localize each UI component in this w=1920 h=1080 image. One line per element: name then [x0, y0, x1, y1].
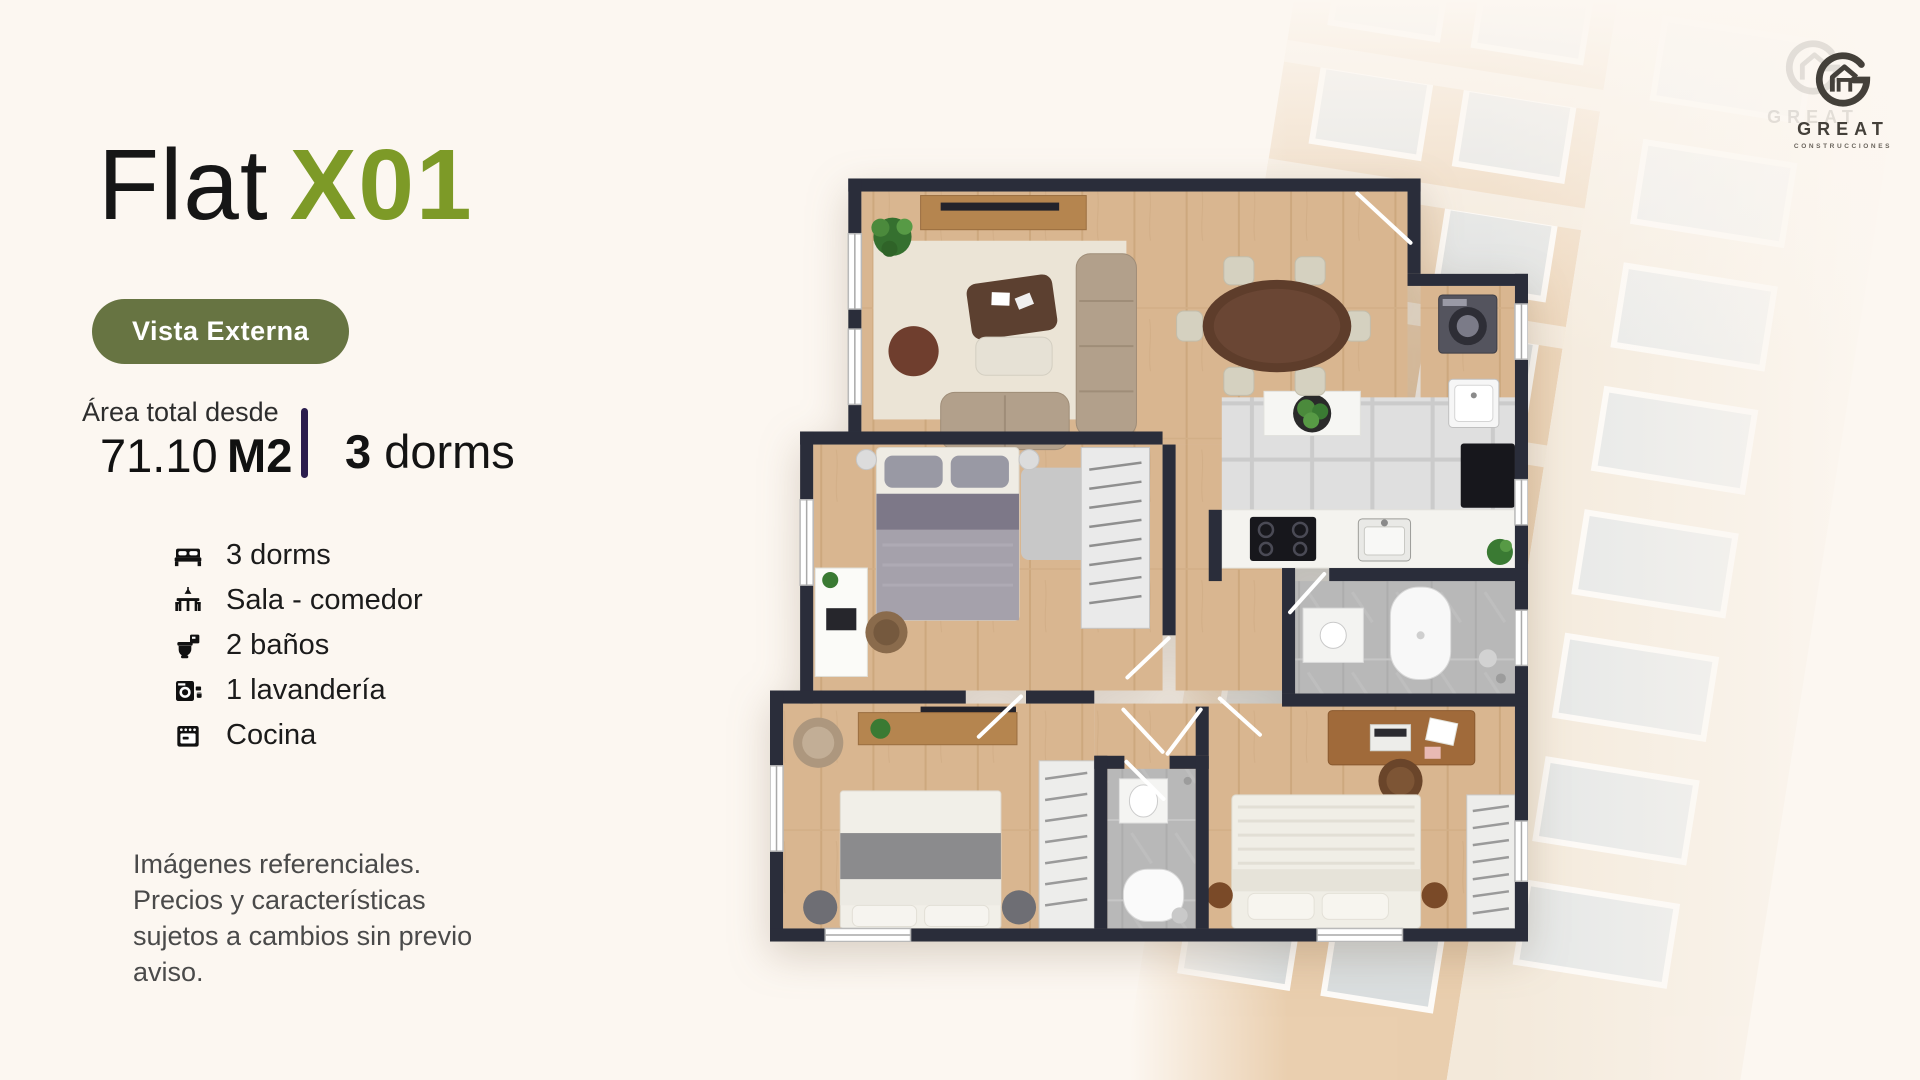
feature-item-dorms: 3 dorms — [172, 533, 423, 578]
floor-plan — [770, 178, 1528, 942]
area-number: 71.10 — [100, 429, 218, 482]
washing-machine-icon — [172, 675, 204, 707]
feature-label: Cocina — [226, 719, 316, 752]
bed-3 — [1232, 795, 1421, 929]
bed-2 — [840, 791, 1001, 929]
vertical-divider — [301, 408, 308, 478]
toilet-icon — [172, 630, 204, 662]
bed-icon — [172, 540, 204, 572]
bedroom1-closet — [1081, 448, 1149, 629]
feature-label: 2 baños — [226, 629, 329, 662]
dorms-headline: 3 dorms — [345, 424, 515, 479]
dorms-number: 3 — [345, 425, 371, 478]
feature-label: Sala - comedor — [226, 584, 423, 617]
accent-chair — [976, 337, 1052, 375]
info-panel: Flat X01 Vista Externa Área total desde … — [0, 0, 700, 1080]
tv — [941, 203, 1059, 211]
area-label: Área total desde — [82, 397, 279, 428]
feature-item-lavanderia: 1 lavandería — [172, 668, 423, 713]
logo-ghost-watermark: GREAT — [1748, 36, 1878, 128]
feature-item-cocina: Cocina — [172, 713, 423, 758]
coffee-table — [965, 273, 1058, 341]
tv-console — [921, 196, 1087, 230]
title-regular: Flat — [98, 129, 269, 241]
cooktop — [1250, 517, 1316, 561]
dorms-word: dorms — [384, 425, 515, 478]
disclaimer-text: Imágenes referenciales. Precios y caract… — [133, 846, 518, 990]
logo-tagline: CONSTRUCCIONES — [1778, 143, 1908, 150]
oven-icon — [172, 720, 204, 752]
title-accent: X01 — [290, 129, 474, 241]
refrigerator — [1461, 444, 1515, 508]
feature-item-sala-comedor: Sala - comedor — [172, 578, 423, 623]
ottoman — [888, 326, 938, 376]
area-value: 71.10 M2 — [100, 428, 292, 483]
feature-list: 3 dorms Sala - comedor 2 baños — [172, 533, 423, 758]
bathroom-1 — [1295, 581, 1515, 693]
feature-item-banos: 2 baños — [172, 623, 423, 668]
flyer-canvas: { "header": { "title_regular": "Flat", "… — [0, 0, 1920, 1080]
feature-label: 3 dorms — [226, 539, 331, 572]
company-logo: GREAT GREAT CONSTRUCCIONES — [1778, 48, 1908, 150]
sofa — [1076, 254, 1136, 437]
page-title: Flat X01 — [98, 128, 474, 243]
vista-externa-badge: Vista Externa — [92, 299, 349, 364]
bedroom2-closet — [1039, 761, 1094, 929]
area-unit: M2 — [227, 429, 292, 482]
dining-table-icon — [172, 585, 204, 617]
bathroom-2 — [1107, 769, 1195, 929]
bedroom3-closet — [1467, 795, 1515, 929]
feature-label: 1 lavandería — [226, 674, 386, 707]
